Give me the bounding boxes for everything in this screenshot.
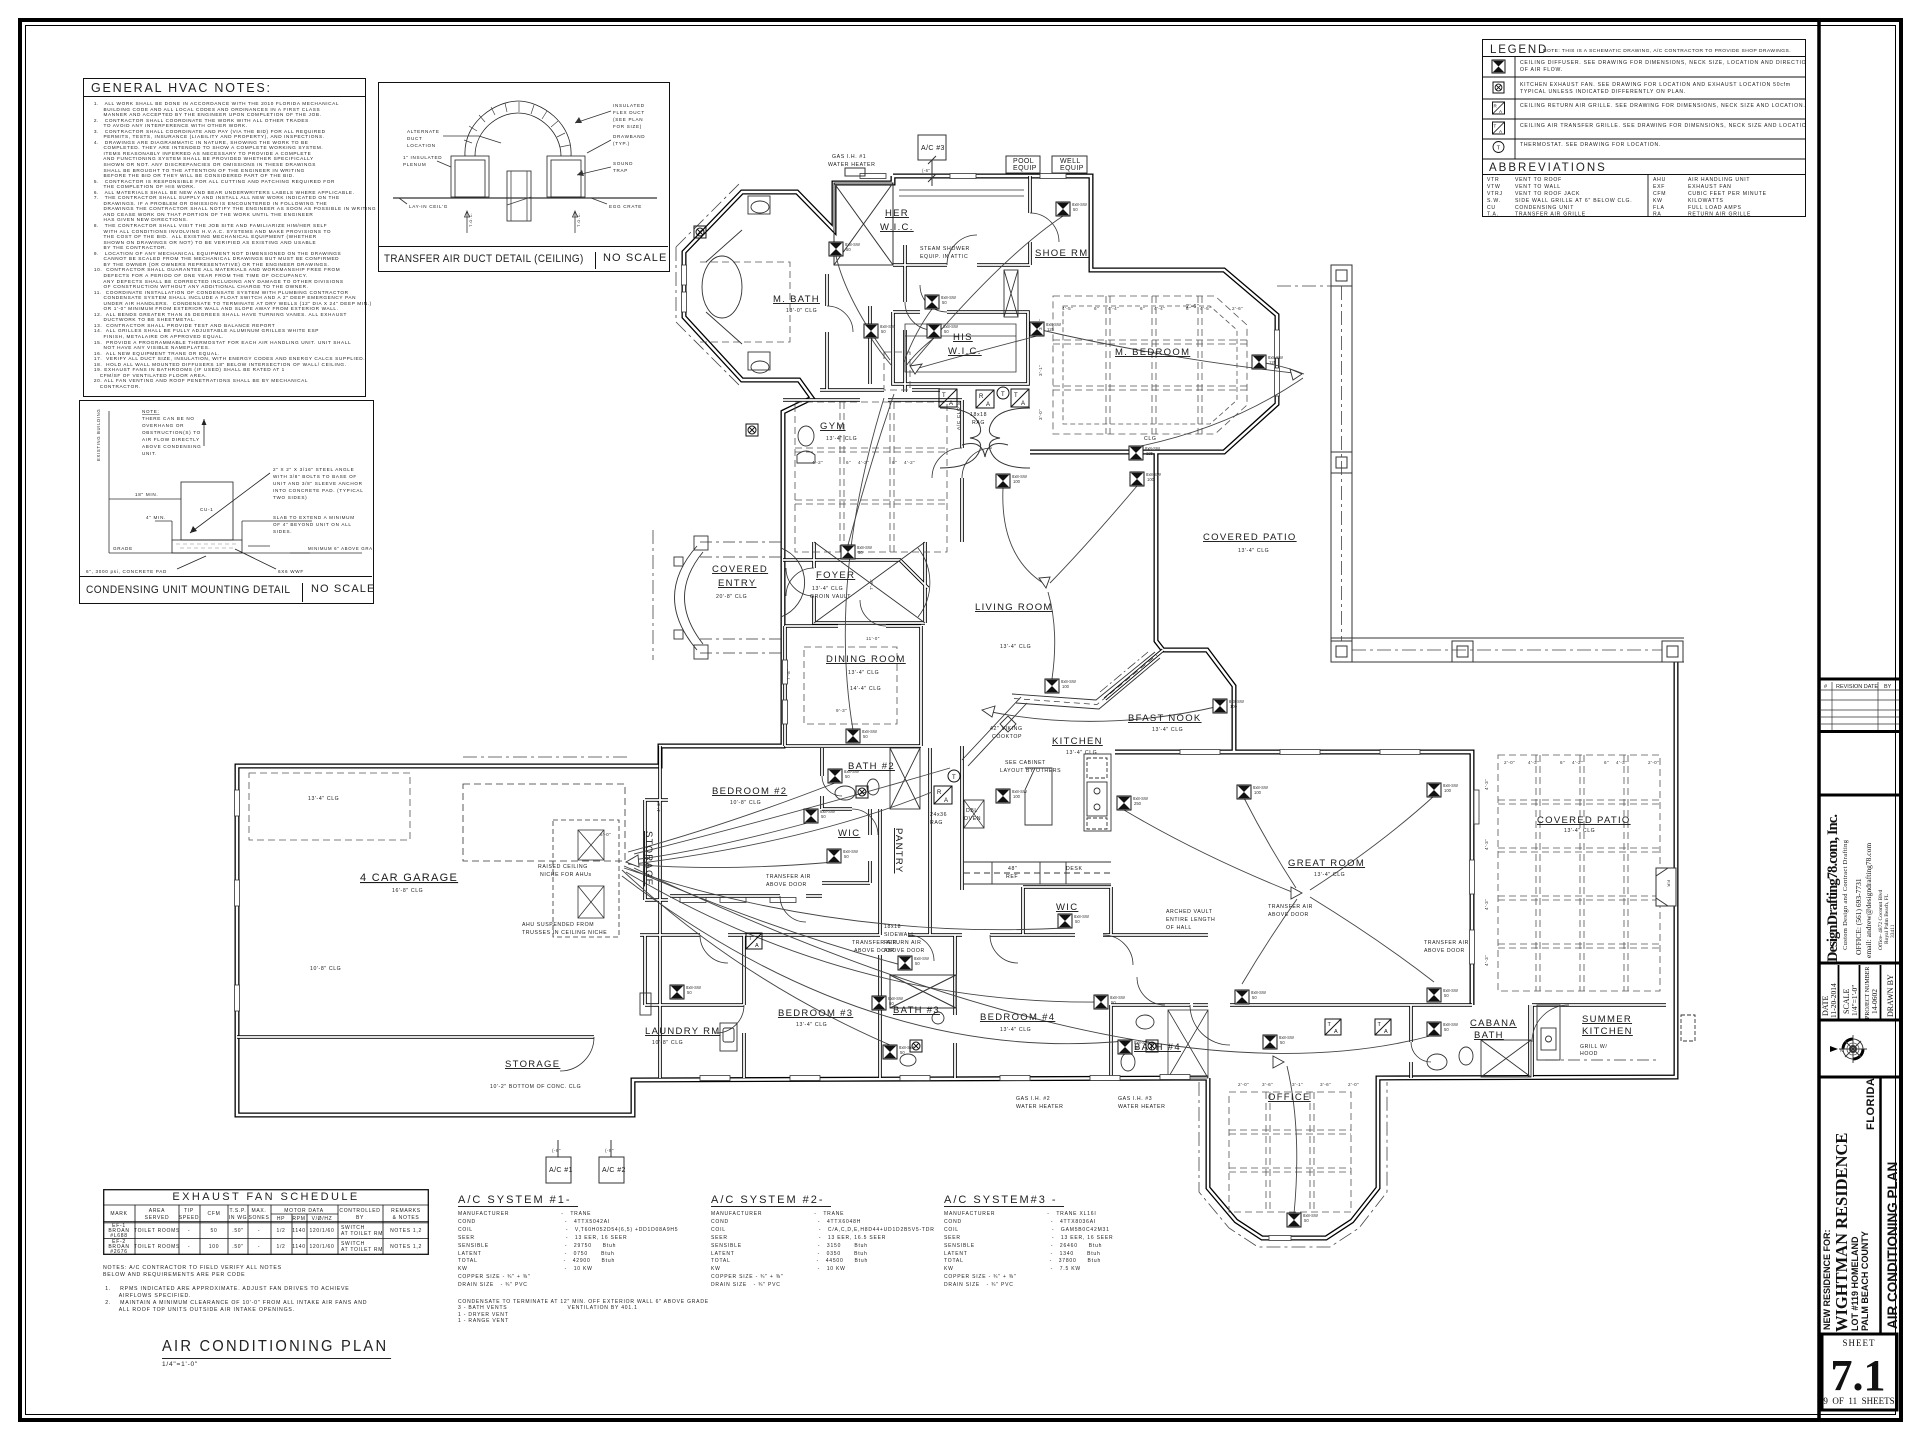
svg-text:EXHAUST FAN: EXHAUST FAN xyxy=(1688,184,1732,190)
svg-text:THERMOSTAT. SEE DRAWING FOR LO: THERMOSTAT. SEE DRAWING FOR LOCATION. xyxy=(1520,142,1661,148)
svg-text:TWO SIDES): TWO SIDES) xyxy=(273,495,307,500)
svg-text:INTO CONCRETE PAD. (TYPICAL: INTO CONCRETE PAD. (TYPICAL xyxy=(273,488,363,493)
svg-text:WIGHTMAN RESIDENCE: WIGHTMAN RESIDENCE xyxy=(1832,1133,1851,1332)
svg-text:UNIT.: UNIT. xyxy=(142,451,157,456)
svg-text:A: A xyxy=(1499,129,1502,134)
svg-text:TOILET ROOMS: TOILET ROOMS xyxy=(134,1244,180,1250)
svg-text:OFFICE: (561) 693-7731: OFFICE: (561) 693-7731 xyxy=(1854,878,1863,955)
svg-text:OF AIR FLOW.: OF AIR FLOW. xyxy=(1520,67,1563,73)
svg-text:FLORIDA: FLORIDA xyxy=(1865,1078,1877,1130)
svg-text:& NOTES: & NOTES xyxy=(393,1215,420,1221)
svg-text:FOR SIZE): FOR SIZE) xyxy=(613,124,642,129)
svg-text:DUCT: DUCT xyxy=(407,136,423,141)
svg-text:WITH 3/8" BOLTS TO BASE OF: WITH 3/8" BOLTS TO BASE OF xyxy=(273,474,357,479)
svg-text:33411: 33411 xyxy=(1890,924,1896,938)
svg-text:A: A xyxy=(1499,109,1502,114)
svg-text:NOTES 1,2: NOTES 1,2 xyxy=(390,1228,422,1234)
svg-text:FULL LOAD AMPS: FULL LOAD AMPS xyxy=(1688,205,1742,211)
svg-text:1140: 1140 xyxy=(292,1228,306,1234)
svg-text:REMARKS: REMARKS xyxy=(391,1208,421,1214)
svg-text:CEILING RETURN AIR GRILLE. SEE: CEILING RETURN AIR GRILLE. SEE DRAWING F… xyxy=(1520,103,1805,109)
svg-text:6X6 WWF: 6X6 WWF xyxy=(278,569,304,574)
svg-text:CONTROLLED: CONTROLLED xyxy=(339,1208,380,1214)
svg-text:AREA: AREA xyxy=(149,1208,165,1214)
svg-text:NOTE: THIS IS A SCHEMATIC DRAW: NOTE: THIS IS A SCHEMATIC DRAWING, A/C C… xyxy=(1543,48,1791,54)
svg-text:AIR CONDITIONING PLAN: AIR CONDITIONING PLAN xyxy=(1885,1162,1900,1329)
svg-text:CU-1: CU-1 xyxy=(200,507,214,512)
svg-text:PALM BEACH COUNTY: PALM BEACH COUNTY xyxy=(1860,1231,1870,1331)
svg-text:CEILING AIR TRANSFER GRILLE. S: CEILING AIR TRANSFER GRILLE. SEE DRAWING… xyxy=(1520,123,1805,129)
svg-text:TRAP: TRAP xyxy=(613,168,628,173)
svg-text:NOTE:: NOTE: xyxy=(142,409,160,414)
svg-text:LEGEND: LEGEND xyxy=(1490,44,1548,56)
svg-text:KW: KW xyxy=(1653,198,1663,204)
svg-text:SPEED: SPEED xyxy=(179,1215,199,1221)
svg-text:RETURN AIR GRILLE: RETURN AIR GRILLE xyxy=(1688,212,1751,217)
svg-text:-: - xyxy=(188,1244,190,1250)
svg-text:V/Ø/HZ: V/Ø/HZ xyxy=(312,1216,333,1222)
svg-text:OF 4" BEYOND UNIT ON ALL: OF 4" BEYOND UNIT ON ALL xyxy=(273,522,352,527)
svg-text:AT TOILET RM: AT TOILET RM xyxy=(341,1247,383,1253)
svg-text:GRADE: GRADE xyxy=(113,546,133,551)
svg-text:SOUND: SOUND xyxy=(613,161,633,166)
svg-text:VENT TO WALL: VENT TO WALL xyxy=(1515,184,1561,190)
svg-text:PLENUM: PLENUM xyxy=(403,162,426,167)
svg-text:OVERHANG OR: OVERHANG OR xyxy=(142,423,184,428)
svg-text:MOTOR DATA: MOTOR DATA xyxy=(284,1208,324,1214)
svg-text:SONES: SONES xyxy=(248,1215,269,1221)
svg-text:VTR: VTR xyxy=(1487,177,1499,183)
svg-text:FLA: FLA xyxy=(1653,205,1665,211)
svg-text:1/2: 1/2 xyxy=(276,1244,285,1250)
svg-text:(SEE PLAN: (SEE PLAN xyxy=(613,117,643,122)
svg-text:FLEX DUCT: FLEX DUCT xyxy=(613,110,645,115)
svg-text:DesignDrafting78.com, Inc.: DesignDrafting78.com, Inc. xyxy=(1825,814,1841,962)
svg-text:MARK: MARK xyxy=(110,1211,127,1217)
svg-text:1" INSULATED: 1" INSULATED xyxy=(403,155,442,160)
svg-text:4" MIN.: 4" MIN. xyxy=(146,515,166,520)
svg-text:1/2: 1/2 xyxy=(276,1228,285,1234)
svg-text:CFM: CFM xyxy=(1653,191,1666,197)
svg-text:LAY-IN CEIL'G: LAY-IN CEIL'G xyxy=(409,204,448,209)
svg-text:SLAB TO EXTEND A MINIMUM: SLAB TO EXTEND A MINIMUM xyxy=(273,515,355,520)
svg-text:VENT TO ROOF: VENT TO ROOF xyxy=(1515,177,1562,183)
svg-text:VENT TO ROOF JACK: VENT TO ROOF JACK xyxy=(1515,191,1580,197)
svg-text:T.A.: T.A. xyxy=(1487,212,1499,217)
svg-text:TYPICAL UNLESS INDICATED DIFFE: TYPICAL UNLESS INDICATED DIFFERENTLY ON … xyxy=(1520,89,1686,95)
svg-text:18" MIN.: 18" MIN. xyxy=(135,492,158,497)
svg-text:DRAWBAND: DRAWBAND xyxy=(613,134,645,139)
svg-text:BY: BY xyxy=(1884,684,1892,690)
svg-text:CFM: CFM xyxy=(208,1211,221,1217)
svg-text:N: N xyxy=(1840,1048,1843,1053)
svg-text:KILOWATTS: KILOWATTS xyxy=(1688,198,1724,204)
svg-text:R: R xyxy=(1494,104,1498,109)
svg-text:EXISTING BUILDING: EXISTING BUILDING xyxy=(96,409,101,461)
svg-text:MINIMUM 6" ABOVE GRADE: MINIMUM 6" ABOVE GRADE xyxy=(308,546,373,551)
svg-text:VTW: VTW xyxy=(1487,184,1501,190)
svg-text:T.O.C.: T.O.C. xyxy=(577,212,581,227)
svg-text:S.W.: S.W. xyxy=(1487,198,1501,204)
svg-text:RPM: RPM xyxy=(292,1216,305,1222)
svg-text:9 OF 11 SHEETS: 9 OF 11 SHEETS xyxy=(1823,1396,1894,1406)
svg-text:SIDES.: SIDES. xyxy=(273,529,292,534)
svg-text:REVISION DATE: REVISION DATE xyxy=(1836,684,1878,690)
svg-text:SERVED: SERVED xyxy=(145,1215,170,1221)
svg-text:120/1/60: 120/1/60 xyxy=(309,1228,334,1234)
svg-text:AIR FLOW DIRECTLY: AIR FLOW DIRECTLY xyxy=(142,437,200,442)
svg-text:Custom Design and Contract Dra: Custom Design and Contract Drafting xyxy=(1842,839,1849,950)
svg-text:T: T xyxy=(1494,124,1497,129)
svg-text:TRANSFER AIR GRILLE: TRANSFER AIR GRILLE xyxy=(1515,212,1586,217)
svg-text:CEILING DIFFUSER. SEE DRAWING: CEILING DIFFUSER. SEE DRAWING FOR DIMENS… xyxy=(1520,60,1805,66)
svg-text:CUBIC FEET PER MINUTE: CUBIC FEET PER MINUTE xyxy=(1688,191,1767,197)
svg-text:MAX.: MAX. xyxy=(251,1208,266,1214)
svg-text:AHU: AHU xyxy=(1653,177,1666,183)
svg-text:EGG CRATE: EGG CRATE xyxy=(609,204,642,209)
svg-text:INSULATED: INSULATED xyxy=(613,103,645,108)
svg-text:RA: RA xyxy=(1653,212,1662,217)
svg-text:OBSTRUCTION(S) TO: OBSTRUCTION(S) TO xyxy=(142,430,201,435)
svg-text:-: - xyxy=(258,1228,260,1234)
svg-text:DRAWN BY: DRAWN BY xyxy=(1886,974,1895,1017)
svg-text:NOTES 1,2: NOTES 1,2 xyxy=(390,1244,422,1250)
svg-text:120/1/60: 120/1/60 xyxy=(309,1244,334,1250)
svg-text:T.O.C.: T.O.C. xyxy=(469,212,473,227)
svg-text:CONDENSING UNIT: CONDENSING UNIT xyxy=(1515,205,1574,211)
svg-text:email: andrew@designdrafting78: email: andrew@designdrafting78.com xyxy=(1864,843,1873,958)
svg-text:T.S.P.: T.S.P. xyxy=(230,1208,247,1214)
svg-text:CU: CU xyxy=(1487,205,1496,211)
svg-text:7.1: 7.1 xyxy=(1831,1351,1886,1400)
svg-text:-: - xyxy=(258,1244,260,1250)
svg-text:1140: 1140 xyxy=(292,1244,306,1250)
svg-text:LOT #119 HOMELAND: LOT #119 HOMELAND xyxy=(1850,1236,1860,1331)
svg-text:TOILET ROOMS: TOILET ROOMS xyxy=(134,1228,180,1234)
svg-text:14-0602: 14-0602 xyxy=(1870,989,1879,1014)
svg-text:ALTERNATE: ALTERNATE xyxy=(407,129,440,134)
svg-text:.50": .50" xyxy=(232,1228,244,1234)
svg-text:NEW RESIDENCE FOR:: NEW RESIDENCE FOR: xyxy=(1822,1229,1832,1330)
svg-text:VTRJ: VTRJ xyxy=(1487,191,1503,197)
svg-text:#: # xyxy=(1824,684,1828,690)
svg-text:T: T xyxy=(1497,145,1501,151)
svg-text:ABBREVIATIONS: ABBREVIATIONS xyxy=(1489,162,1607,174)
svg-text:HP: HP xyxy=(277,1216,285,1222)
svg-text:TIP: TIP xyxy=(184,1208,194,1214)
svg-text:1/4"=1'-0": 1/4"=1'-0" xyxy=(1850,985,1859,1016)
svg-text:UNIT AND 3/8" SLEEVE ANCHOR: UNIT AND 3/8" SLEEVE ANCHOR xyxy=(273,481,363,486)
svg-text:.50": .50" xyxy=(232,1244,244,1250)
svg-text:EXF: EXF xyxy=(1653,184,1665,190)
svg-text:THERE CAN BE NO: THERE CAN BE NO xyxy=(142,416,195,421)
svg-text:2" X 2" X 3/16" STEEL ANGLE: 2" X 2" X 3/16" STEEL ANGLE xyxy=(273,467,354,472)
svg-text:(TYP.): (TYP.) xyxy=(613,141,630,146)
svg-text:IN WG: IN WG xyxy=(229,1215,248,1221)
svg-text:ABOVE CONDENSING: ABOVE CONDENSING xyxy=(142,444,201,449)
svg-text:KITCHEN EXHAUST FAN. SEE DRAWI: KITCHEN EXHAUST FAN. SEE DRAWING FOR LOC… xyxy=(1520,82,1791,88)
svg-text:6", 3000 psi, CONCRETE PAD: 6", 3000 psi, CONCRETE PAD xyxy=(86,569,167,574)
svg-text:100: 100 xyxy=(209,1244,219,1250)
svg-text:BY: BY xyxy=(356,1215,364,1221)
svg-text:Office- 4872 Coconut Blvd: Office- 4872 Coconut Blvd xyxy=(1877,890,1884,950)
svg-text:SIDE WALL GRILLE AT 6" BELOW C: SIDE WALL GRILLE AT 6" BELOW CLG. xyxy=(1515,198,1632,204)
svg-text:SHEET: SHEET xyxy=(1843,1338,1876,1348)
svg-text:AT TOILET RM: AT TOILET RM xyxy=(341,1231,383,1237)
svg-text:-: - xyxy=(188,1228,190,1234)
svg-text:11-20-2014: 11-20-2014 xyxy=(1829,983,1838,1018)
svg-text:50: 50 xyxy=(211,1228,218,1234)
svg-text:AIR HANDLING UNIT: AIR HANDLING UNIT xyxy=(1688,177,1750,183)
svg-text:#2676: #2676 xyxy=(110,1249,127,1255)
svg-text:LOCATION: LOCATION xyxy=(407,143,436,148)
svg-text:EXHAUST FAN SCHEDULE: EXHAUST FAN SCHEDULE xyxy=(172,1191,359,1203)
